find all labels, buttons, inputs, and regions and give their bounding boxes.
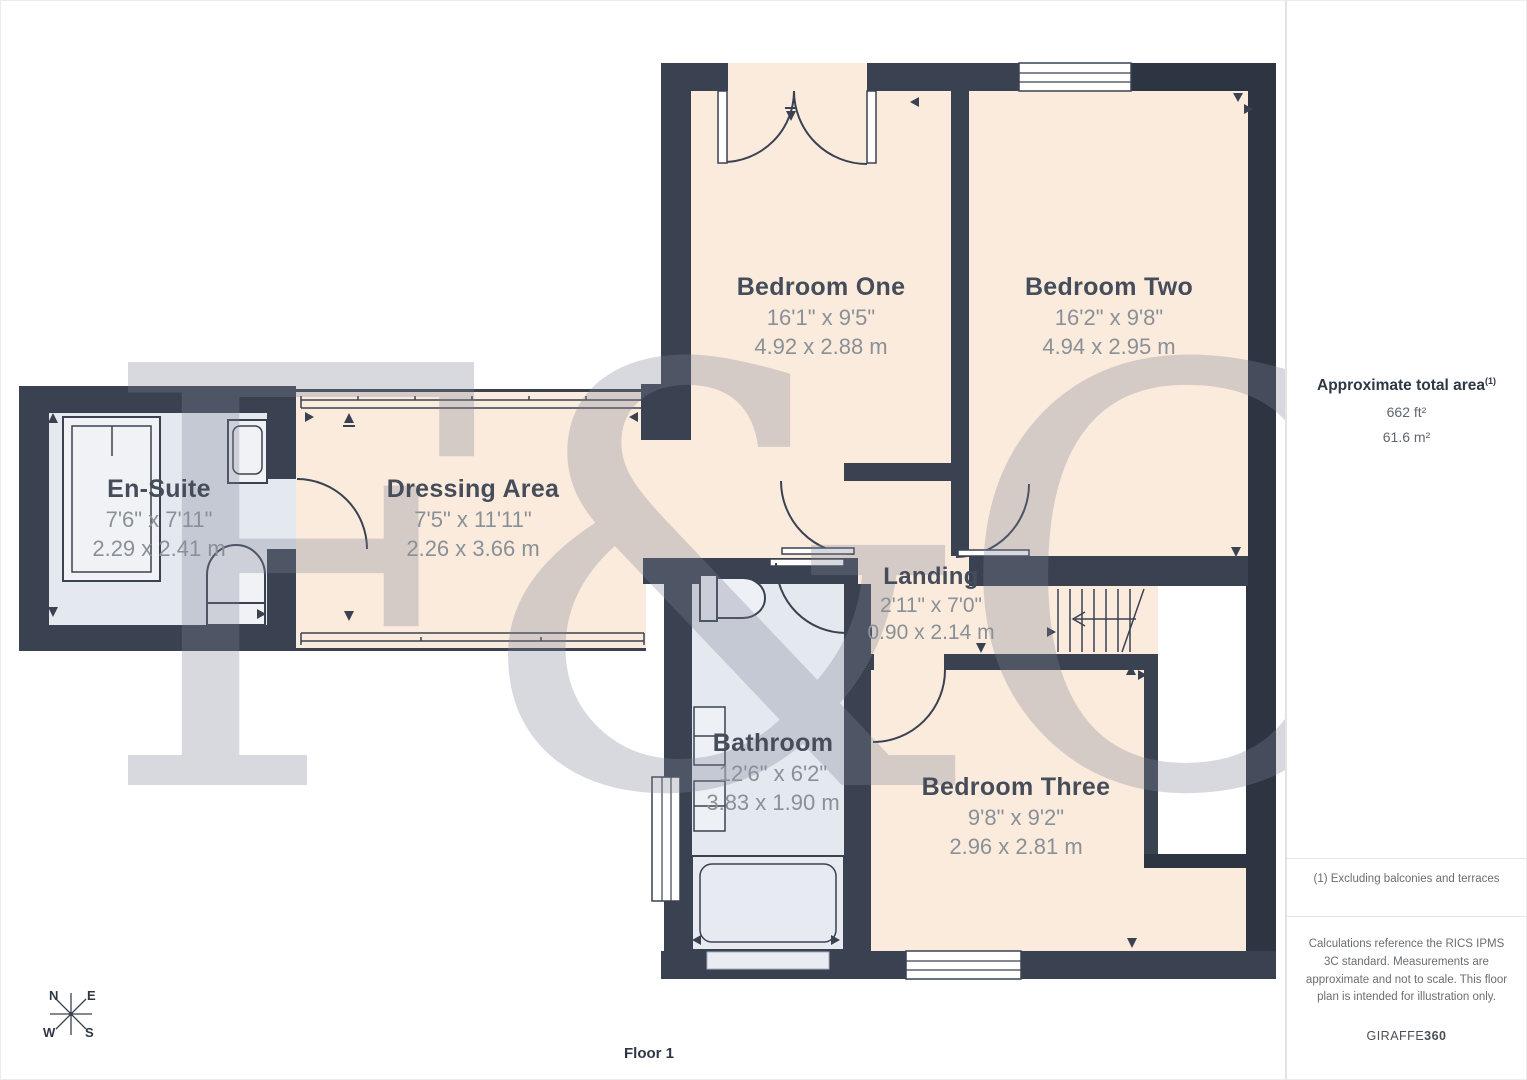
room-size-metric: 3.83 x 1.90 m — [706, 790, 839, 816]
brand-logo: GIRAFFE360 — [1287, 1029, 1526, 1043]
stairs — [1058, 589, 1144, 652]
compass-south: S — [85, 1025, 94, 1040]
sink — [228, 420, 267, 483]
divider — [1287, 858, 1526, 859]
info-sidebar: Approximate total area(1) 662 ft² 61.6 m… — [1285, 1, 1526, 1080]
room-size-imperial: 7'6" x 7'11" — [92, 507, 225, 533]
divider — [1287, 916, 1526, 917]
wardrobe — [301, 633, 644, 645]
room-label-landing: Landing 2'11" x 7'0" 0.90 x 2.14 m — [867, 563, 994, 645]
total-area-imperial: 662 ft² — [1287, 404, 1526, 420]
room-name: Bedroom Two — [1025, 273, 1193, 302]
bathtub — [692, 856, 844, 969]
door-arc — [297, 479, 367, 549]
room-size-metric: 2.29 x 2.41 m — [92, 536, 225, 562]
door-arc — [794, 91, 867, 164]
disclaimer-text: Calculations reference the RICS IPMS 3C … — [1287, 936, 1526, 1007]
room-name: Dressing Area — [387, 475, 560, 504]
compass-west: W — [43, 1025, 56, 1040]
door-leaf — [782, 548, 854, 554]
brand-suffix: 360 — [1424, 1029, 1446, 1043]
brand-name: GIRAFFE — [1366, 1029, 1424, 1043]
footnote-text: (1) Excluding balconies and terraces — [1287, 873, 1526, 885]
room-name: En-Suite — [92, 475, 225, 504]
room-size-imperial: 16'1" x 9'5" — [737, 305, 906, 331]
room-name: Bedroom One — [737, 273, 906, 302]
compass-icon: N E W S — [23, 973, 123, 1053]
room-label-bedroom-three: Bedroom Three 9'8" x 9'2" 2.96 x 2.81 m — [922, 773, 1111, 860]
room-size-imperial: 7'5" x 11'11" — [387, 507, 560, 533]
room-label-bedroom-two: Bedroom Two 16'2" x 9'8" 4.94 x 2.95 m — [1025, 273, 1193, 360]
room-size-metric: 0.90 x 2.14 m — [867, 621, 994, 645]
door-arc — [956, 484, 1029, 557]
room-size-metric: 2.26 x 3.66 m — [387, 536, 560, 562]
room-label-dressing-area: Dressing Area 7'5" x 11'11" 2.26 x 3.66 … — [387, 475, 560, 562]
room-name: Landing — [867, 563, 994, 591]
window — [1019, 63, 1131, 91]
room-size-metric: 2.96 x 2.81 m — [922, 834, 1111, 860]
total-area-block: Approximate total area(1) 662 ft² 61.6 m… — [1287, 376, 1526, 445]
room-size-metric: 4.94 x 2.95 m — [1025, 334, 1193, 360]
room-name: Bathroom — [706, 729, 839, 758]
wardrobe — [301, 396, 646, 408]
room-size-imperial: 12'6" x 6'2" — [706, 761, 839, 787]
room-size-imperial: 16'2" x 9'8" — [1025, 305, 1193, 331]
door-leaf — [958, 550, 1029, 556]
floorplan-page: Bedroom One 16'1" x 9'5" 4.92 x 2.88 m B… — [0, 0, 1527, 1080]
door-leaf — [718, 91, 727, 163]
footnote-marker: (1) — [1485, 376, 1496, 386]
toilet — [700, 575, 765, 621]
room-name: Bedroom Three — [922, 773, 1111, 802]
room-size-imperial: 2'11" x 7'0" — [867, 594, 994, 618]
compass-east: E — [87, 988, 96, 1003]
room-label-en-suite: En-Suite 7'6" x 7'11" 2.29 x 2.41 m — [92, 475, 225, 562]
room-size-metric: 4.92 x 2.88 m — [737, 334, 906, 360]
door-arc — [873, 670, 945, 742]
room-label-bedroom-one: Bedroom One 16'1" x 9'5" 4.92 x 2.88 m — [737, 273, 906, 360]
floor-label: Floor 1 — [549, 1045, 749, 1062]
door-leaf — [867, 91, 876, 163]
total-area-metric: 61.6 m² — [1287, 429, 1526, 445]
window — [906, 951, 1021, 979]
door-arc — [781, 481, 854, 554]
room-label-bathroom: Bathroom 12'6" x 6'2" 3.83 x 1.90 m — [706, 729, 839, 816]
door-arc — [723, 91, 794, 162]
door-sill — [770, 559, 844, 566]
room-size-imperial: 9'8" x 9'2" — [922, 805, 1111, 831]
compass-north: N — [49, 988, 58, 1003]
window — [652, 777, 680, 901]
door-arc — [776, 563, 846, 633]
total-area-title: Approximate total area(1) — [1287, 376, 1526, 395]
